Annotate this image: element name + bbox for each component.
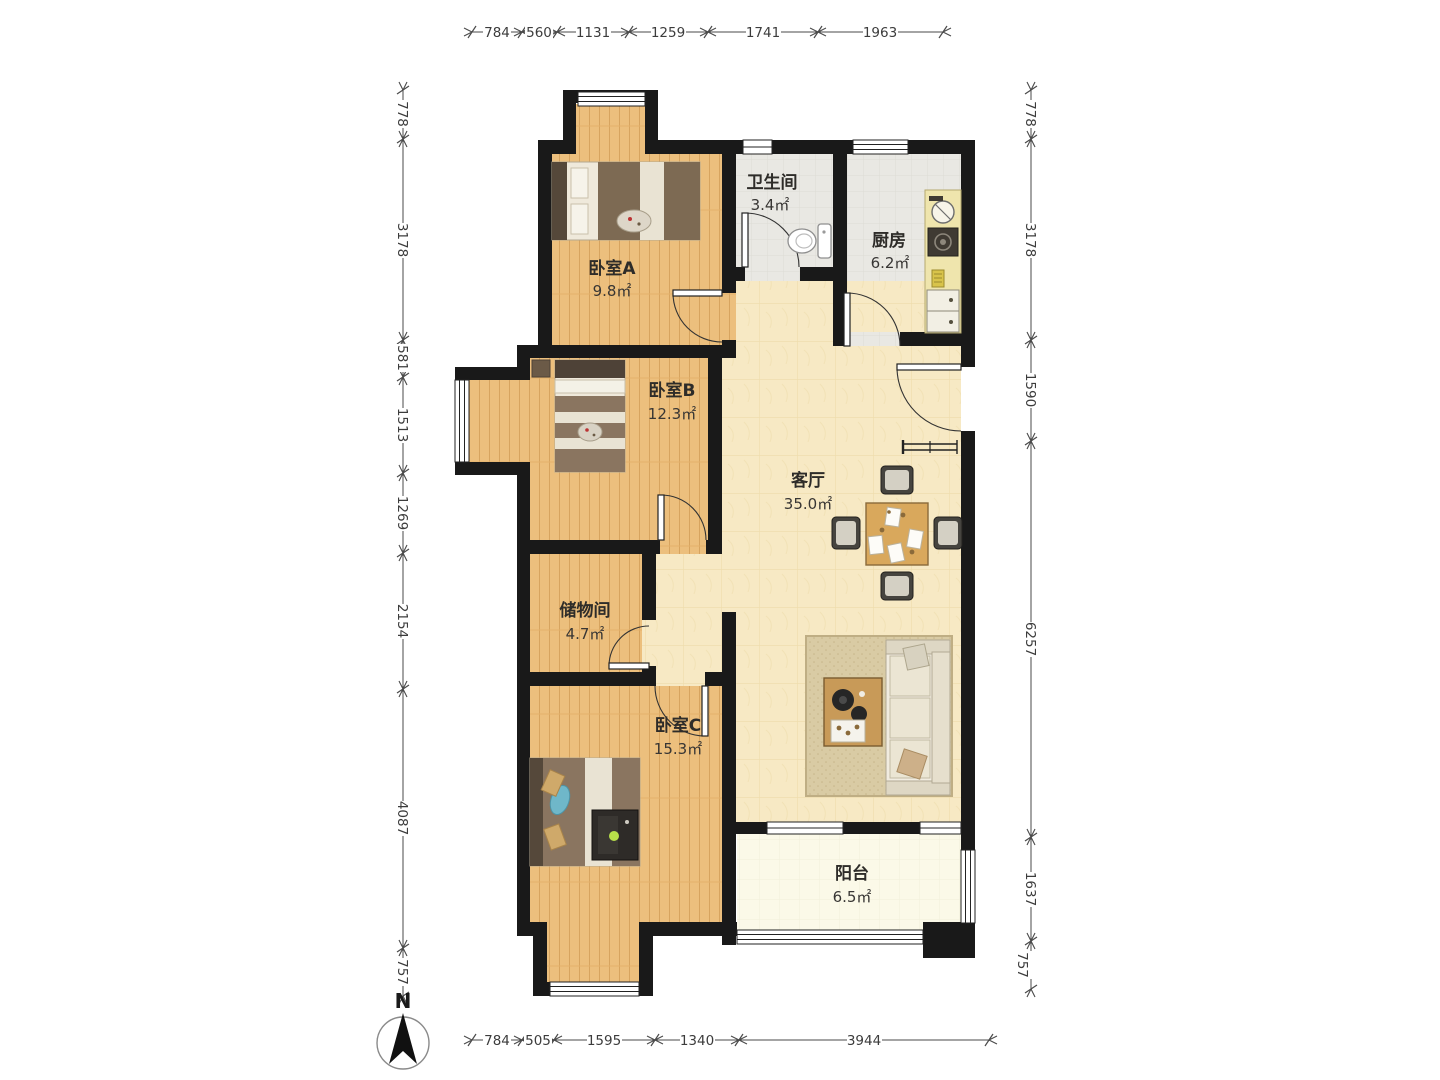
dim-right-5: 1637 [1022, 872, 1038, 906]
dim-left-3: 581 [394, 345, 410, 371]
dim-left-1: 778 [394, 101, 410, 127]
dim-bottom-2: 505 [525, 1033, 551, 1049]
dimensions-bottom: 784 505 1595 1340 3944 [468, 1032, 993, 1049]
dimensions-left: 778 3178 581 1513 1269 2154 4087 757 [394, 86, 411, 1000]
dim-top-2: 560 [526, 25, 552, 41]
dimensions-right: 778 3178 1590 6257 1637 757 [1014, 86, 1039, 993]
bathroom-area: 3.4㎡ [751, 196, 790, 214]
dimensions-top: 784 560 1131 1259 1741 1963 [468, 24, 947, 41]
bedroom-c-bay-floor [547, 922, 639, 982]
bedroom-c-area: 15.3㎡ [654, 740, 702, 758]
dim-bottom-1: 784 [484, 1033, 510, 1049]
dim-right-3: 1590 [1022, 373, 1038, 407]
bedroom-c-bay-window [550, 982, 639, 996]
storage-label: 储物间 [560, 600, 611, 621]
floor-plan-page: 卧室A 9.8㎡ 卫生间 3.4㎡ 厨房 6.2㎡ 卧室B 12.3㎡ 客厅 3… [0, 0, 1440, 1080]
dim-top-6: 1963 [863, 25, 897, 41]
dim-right-6: 757 [1014, 952, 1030, 978]
bathroom-label: 卫生间 [747, 172, 798, 193]
kitchen-window [853, 140, 908, 154]
dim-top-5: 1741 [746, 25, 780, 41]
bedroom-a-door-floor [722, 293, 736, 340]
dim-left-2: 3178 [394, 223, 410, 257]
dim-left-4: 1513 [394, 408, 410, 442]
dim-bottom-4: 1340 [680, 1033, 714, 1049]
sofa [886, 640, 950, 795]
bed-bedroom-a [552, 162, 700, 240]
balcony-right-window [961, 850, 975, 923]
dim-top-3: 1131 [576, 25, 610, 41]
bedroom-b-bay-floor [469, 380, 530, 462]
dim-bottom-5: 3944 [847, 1033, 881, 1049]
floor-plan-canvas: 卧室A 9.8㎡ 卫生间 3.4㎡ 厨房 6.2㎡ 卧室B 12.3㎡ 客厅 3… [0, 0, 1440, 1080]
bedroom-b-door-floor [660, 540, 706, 554]
bedroom-c-door-floor [655, 672, 705, 686]
dim-right-2: 3178 [1022, 223, 1038, 257]
compass: N [377, 989, 429, 1069]
compass-north-label: N [395, 989, 412, 1013]
dim-right-1: 778 [1022, 101, 1038, 127]
bathroom-window [743, 140, 772, 154]
kitchen-label: 厨房 [872, 230, 906, 251]
balcony-label: 阳台 [835, 863, 869, 884]
bedroom-a-label: 卧室A [588, 258, 636, 279]
kitchen-door-floor [847, 332, 900, 346]
living-room-area: 35.0㎡ [784, 495, 832, 513]
storage-door-floor [642, 620, 656, 666]
bathroom-door-floor [745, 267, 800, 281]
kitchen-counter [925, 190, 961, 333]
bedroom-c-label: 卧室C [655, 715, 701, 736]
balcony-bottom-window [737, 930, 923, 944]
dim-top-1: 784 [484, 25, 510, 41]
storage-area: 4.7㎡ [566, 625, 605, 643]
dim-right-4: 6257 [1022, 622, 1038, 656]
compass-needle-icon [389, 1013, 417, 1064]
dim-left-5: 1269 [394, 496, 410, 530]
dim-bottom-3: 1595 [587, 1033, 621, 1049]
balcony-area: 6.5㎡ [833, 888, 872, 906]
kitchen-area: 6.2㎡ [871, 254, 910, 272]
dim-top-4: 1259 [651, 25, 685, 41]
coffee-table [824, 678, 882, 746]
dim-left-6: 2154 [394, 604, 410, 638]
bedroom-b-label: 卧室B [649, 380, 696, 401]
bedroom-a-bay-window [578, 92, 645, 106]
living-room-label: 客厅 [790, 470, 825, 491]
hallway-floor [656, 554, 722, 686]
bedroom-a-area: 9.8㎡ [593, 282, 632, 300]
bedroom-b-area: 12.3㎡ [648, 405, 696, 423]
bedroom-a-bay-floor [576, 104, 645, 154]
bedroom-b-bay-window [455, 380, 469, 462]
bed-bedroom-c [530, 758, 640, 866]
dim-left-7: 4087 [394, 801, 410, 835]
bedroom-c-cabinet [592, 810, 638, 860]
dim-left-8: 757 [394, 959, 410, 985]
